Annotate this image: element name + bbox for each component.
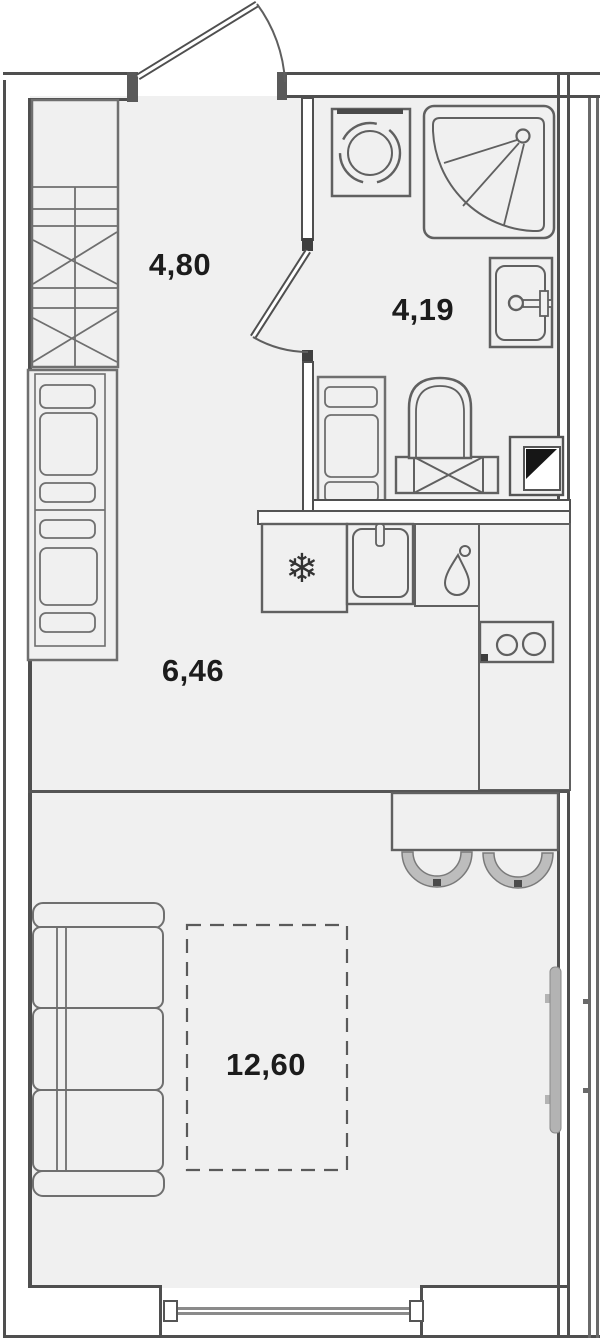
- bathroom-door-jamb-top: [302, 238, 313, 251]
- hallway-area-label: 4,80: [149, 247, 211, 282]
- wardrobe-icon: [32, 100, 118, 367]
- counter-cell: [415, 524, 479, 606]
- bathroom-sink-icon: [490, 258, 552, 347]
- fridge-snowflake-icon: ❄: [285, 546, 319, 592]
- neighbour-wall-lines: [583, 98, 599, 1338]
- bathroom-south-wall: [313, 500, 570, 511]
- kitchen-cabinet-column-icon: [28, 370, 117, 660]
- sofa-icon: [33, 903, 164, 1196]
- bathroom-cabinet-icon: [318, 377, 385, 505]
- entrance-door: [127, 4, 287, 102]
- floor-plan-svg: ❄: [0, 0, 600, 1343]
- vent-shaft-icon: [510, 437, 563, 495]
- entrance-door-jamb-left: [127, 72, 138, 102]
- window-icon: [164, 1301, 423, 1321]
- bar-counter-icon: [392, 793, 558, 850]
- kitchen-area-label: 6,46: [162, 653, 224, 688]
- toilet-bowl: [409, 378, 471, 458]
- washing-machine-icon: [332, 109, 410, 196]
- floor-plan: ❄: [0, 0, 600, 1343]
- shower-cabin-icon: [424, 106, 554, 238]
- entrance-door-swing-arc: [257, 4, 285, 82]
- kitchen-tap-icon: [376, 524, 384, 546]
- kitchen-counter-back-edge: [258, 511, 570, 524]
- living-room-area-label: 12,60: [226, 1047, 306, 1082]
- bathroom-area-label: 4,19: [392, 292, 454, 327]
